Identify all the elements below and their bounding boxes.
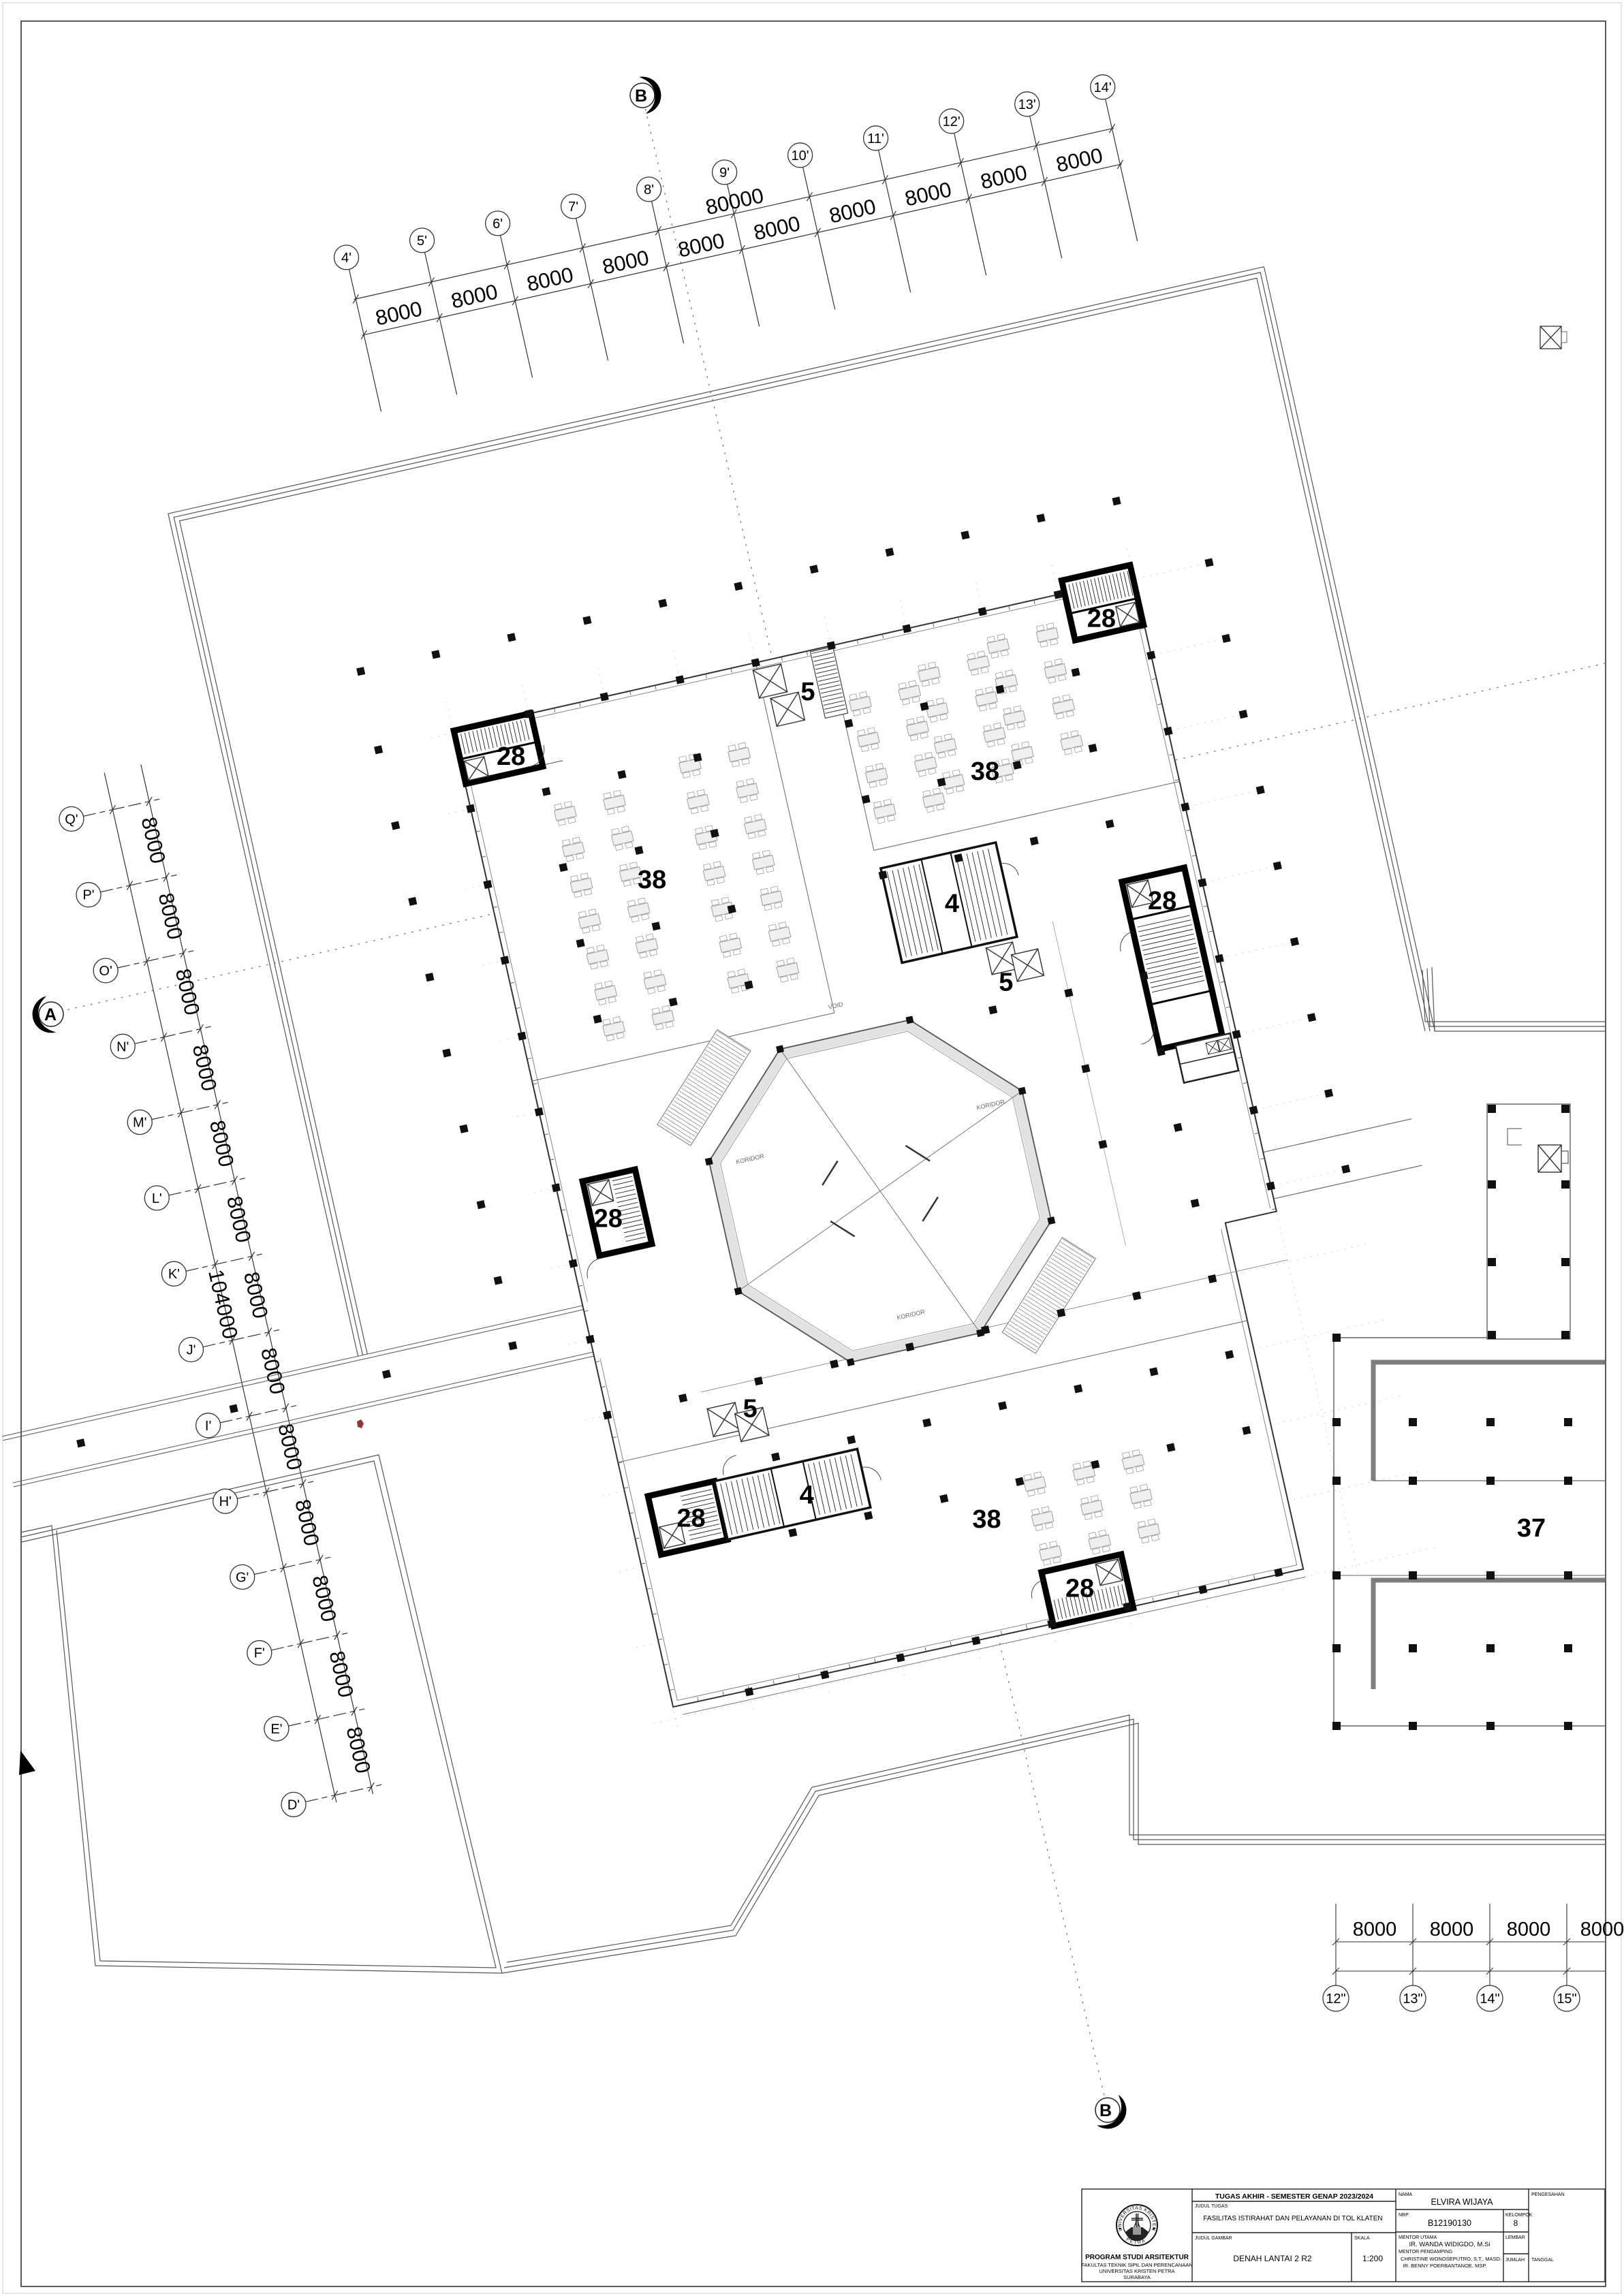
svg-text:B: B: [1099, 2101, 1112, 2120]
svg-text:CHRISTINE WONOSEPUTRO, S.T., M: CHRISTINE WONOSEPUTRO, S.T., MASD.: [1401, 2256, 1501, 2262]
svg-text:PROGRAM STUDI ARSITEKTUR: PROGRAM STUDI ARSITEKTUR: [1085, 2254, 1189, 2261]
svg-text:L': L': [152, 1191, 162, 1206]
svg-text:G': G': [236, 1570, 249, 1585]
svg-text:SKALA: SKALA: [1354, 2236, 1370, 2241]
svg-text:NRP: NRP: [1399, 2213, 1409, 2218]
svg-text:JUDUL TUGAS: JUDUL TUGAS: [1195, 2204, 1228, 2209]
svg-text:8000: 8000: [1353, 1919, 1397, 1940]
svg-text:O': O': [99, 964, 112, 979]
svg-text:N': N': [116, 1039, 129, 1054]
svg-text:LEMBAR: LEMBAR: [1505, 2235, 1525, 2240]
svg-text:15": 15": [1557, 1992, 1576, 2007]
svg-text:DENAH LANTAI 2 R2: DENAH LANTAI 2 R2: [1233, 2254, 1311, 2263]
svg-text:M': M': [133, 1116, 146, 1131]
svg-text:1:200: 1:200: [1362, 2254, 1383, 2263]
svg-text:TANGGAL: TANGGAL: [1531, 2258, 1554, 2263]
svg-text:H': H': [219, 1494, 232, 1509]
svg-text:28: 28: [1065, 1575, 1094, 1603]
svg-text:7': 7': [568, 200, 578, 215]
svg-text:IR. BENNY POERBANTANOE, MSP.: IR. BENNY POERBANTANOE, MSP.: [1403, 2263, 1487, 2269]
svg-text:A: A: [44, 1005, 57, 1024]
svg-text:FAKULTAS TEKNIK SIPIL DAN PERE: FAKULTAS TEKNIK SIPIL DAN PERENCANAAN: [1081, 2262, 1193, 2268]
svg-text:8000: 8000: [1430, 1919, 1474, 1940]
svg-text:MENTOR PENDAMPING: MENTOR PENDAMPING: [1399, 2250, 1452, 2254]
svg-text:28: 28: [1087, 605, 1116, 633]
svg-text:8': 8': [644, 183, 654, 198]
svg-text:KELOMPOK: KELOMPOK: [1505, 2213, 1533, 2218]
svg-text:SURABAYA: SURABAYA: [1123, 2274, 1151, 2280]
svg-text:JUMLAH: JUMLAH: [1505, 2258, 1525, 2263]
svg-text:P': P': [82, 888, 94, 903]
svg-text:28: 28: [676, 1505, 705, 1533]
svg-text:8000: 8000: [1507, 1919, 1551, 1940]
svg-text:4': 4': [341, 251, 352, 266]
svg-text:13': 13': [1018, 97, 1036, 112]
svg-text:14": 14": [1480, 1992, 1499, 2007]
svg-text:10': 10': [792, 148, 809, 163]
svg-text:TUGAS AKHIR - SEMESTER GENAP 2: TUGAS AKHIR - SEMESTER GENAP 2023/2024: [1215, 2192, 1373, 2201]
svg-text:I': I': [205, 1419, 211, 1434]
svg-text:5: 5: [999, 969, 1013, 997]
svg-text:JUDUL GAMBAR: JUDUL GAMBAR: [1195, 2236, 1232, 2241]
svg-text:11': 11': [867, 131, 884, 146]
svg-text:FASILITAS ISTIRAHAT DAN PELAYA: FASILITAS ISTIRAHAT DAN PELAYANAN DI TOL…: [1203, 2215, 1382, 2222]
svg-text:37: 37: [1517, 1514, 1546, 1543]
svg-text:5: 5: [800, 678, 815, 706]
svg-text:NAMA: NAMA: [1399, 2192, 1413, 2197]
svg-text:MENTOR UTAMA: MENTOR UTAMA: [1399, 2235, 1437, 2240]
svg-text:14': 14': [1094, 80, 1112, 95]
svg-text:38: 38: [638, 866, 666, 894]
svg-text:5': 5': [417, 234, 427, 249]
svg-text:B12190130: B12190130: [1428, 2218, 1471, 2228]
svg-text:Q': Q': [65, 812, 78, 827]
svg-text:28: 28: [594, 1205, 623, 1233]
svg-text:K': K': [168, 1267, 180, 1282]
svg-text:ELVIRA WIJAYA: ELVIRA WIJAYA: [1431, 2197, 1494, 2207]
svg-text:8000: 8000: [1580, 1919, 1624, 1940]
svg-text:UNIVERSITAS KRISTEN PETRA: UNIVERSITAS KRISTEN PETRA: [1099, 2268, 1174, 2274]
svg-text:F': F': [254, 1646, 265, 1661]
svg-text:8: 8: [1514, 2218, 1518, 2228]
svg-text:PENGESAHAN: PENGESAHAN: [1531, 2192, 1565, 2197]
svg-text:38: 38: [971, 757, 999, 786]
svg-text:12': 12': [943, 114, 961, 129]
svg-text:D': D': [287, 1797, 300, 1812]
svg-text:38: 38: [972, 1505, 1001, 1534]
svg-text:4: 4: [800, 1481, 814, 1509]
svg-text:IR. WANDA WIDIGDO, M.Si: IR. WANDA WIDIGDO, M.Si: [1409, 2241, 1490, 2248]
svg-text:5: 5: [743, 1395, 758, 1424]
svg-text:E': E': [270, 1722, 282, 1737]
svg-text:28: 28: [1148, 887, 1176, 915]
svg-text:6': 6': [493, 217, 503, 232]
svg-text:28: 28: [497, 742, 525, 771]
svg-text:9': 9': [719, 166, 730, 180]
svg-text:B: B: [635, 87, 647, 106]
svg-text:J': J': [187, 1343, 196, 1358]
svg-text:12": 12": [1326, 1992, 1345, 2007]
svg-text:13": 13": [1403, 1992, 1422, 2007]
svg-text:4: 4: [945, 890, 959, 918]
